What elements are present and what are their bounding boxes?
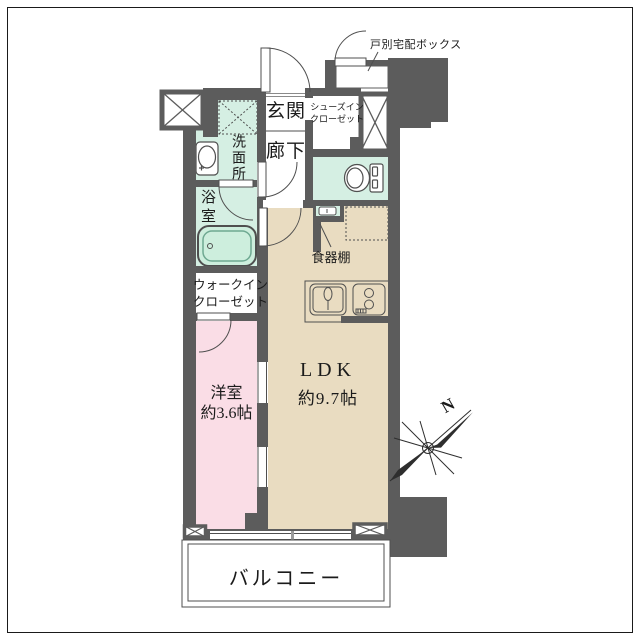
bedroom-size: 約3.6帖 bbox=[196, 404, 257, 424]
sliding-door-icon bbox=[257, 362, 268, 403]
toilet-icon bbox=[345, 164, 384, 192]
floorplan-drawing bbox=[0, 0, 640, 640]
ldk-name: LDK bbox=[268, 359, 388, 382]
walk-in-closet-label-line1: ウォークイン bbox=[193, 277, 259, 294]
hallway-label: 廊下 bbox=[266, 136, 305, 163]
bathroom-label: 浴室 bbox=[197, 189, 218, 229]
pillar-x-icon bbox=[185, 526, 206, 537]
shoes-closet-label-line1: シューズイン bbox=[310, 101, 364, 113]
floorplan-canvas: 玄関 廊下 シューズイン クローゼット 洗面所 浴室 ウォークイン クローゼット… bbox=[0, 0, 640, 640]
walk-in-closet-label-line2: クローゼット bbox=[193, 294, 259, 311]
washroom-label: 洗面所 bbox=[227, 134, 247, 186]
compass-rose-icon bbox=[390, 410, 473, 481]
delivery-box-door-icon bbox=[335, 31, 366, 66]
bedroom-name: 洋室 bbox=[196, 384, 257, 404]
sliding-door-icon bbox=[257, 447, 268, 487]
shaft-x-icon bbox=[361, 94, 389, 151]
washbasin-icon bbox=[196, 142, 218, 175]
entrance-door-icon bbox=[261, 48, 310, 92]
bathtub-icon bbox=[198, 226, 256, 266]
walk-in-closet-label: ウォークイン クローゼット bbox=[193, 277, 259, 311]
balcony-label: バルコニー bbox=[182, 562, 390, 591]
ldk-label: LDK 約9.7帖 bbox=[268, 359, 388, 409]
shoes-closet-label: シューズイン クローゼット bbox=[310, 101, 364, 125]
pillar-x-icon bbox=[162, 92, 203, 128]
bedroom-floor bbox=[196, 320, 257, 535]
delivery-box-area bbox=[336, 66, 388, 88]
entrance-label: 玄関 bbox=[266, 96, 305, 123]
nook-basin-icon bbox=[319, 207, 336, 215]
cupboard-label: 食器棚 bbox=[305, 247, 357, 266]
bedroom-label: 洋室 約3.6帖 bbox=[196, 384, 257, 424]
delivery-box-label: 戸別宅配ボックス bbox=[370, 36, 462, 52]
ldk-size: 約9.7帖 bbox=[268, 384, 388, 409]
shoes-closet-label-line2: クローゼット bbox=[310, 113, 364, 125]
pillar-x-icon bbox=[354, 524, 386, 536]
